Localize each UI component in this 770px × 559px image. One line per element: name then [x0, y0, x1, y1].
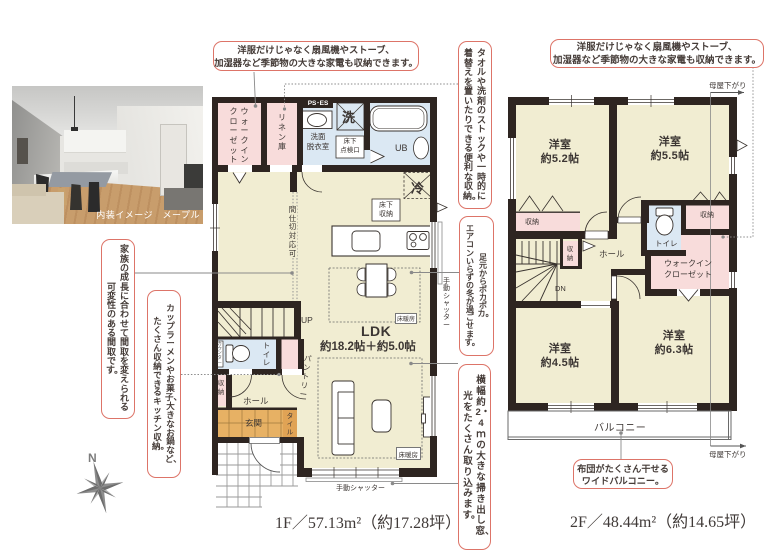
svg-text:N: N: [88, 451, 97, 465]
